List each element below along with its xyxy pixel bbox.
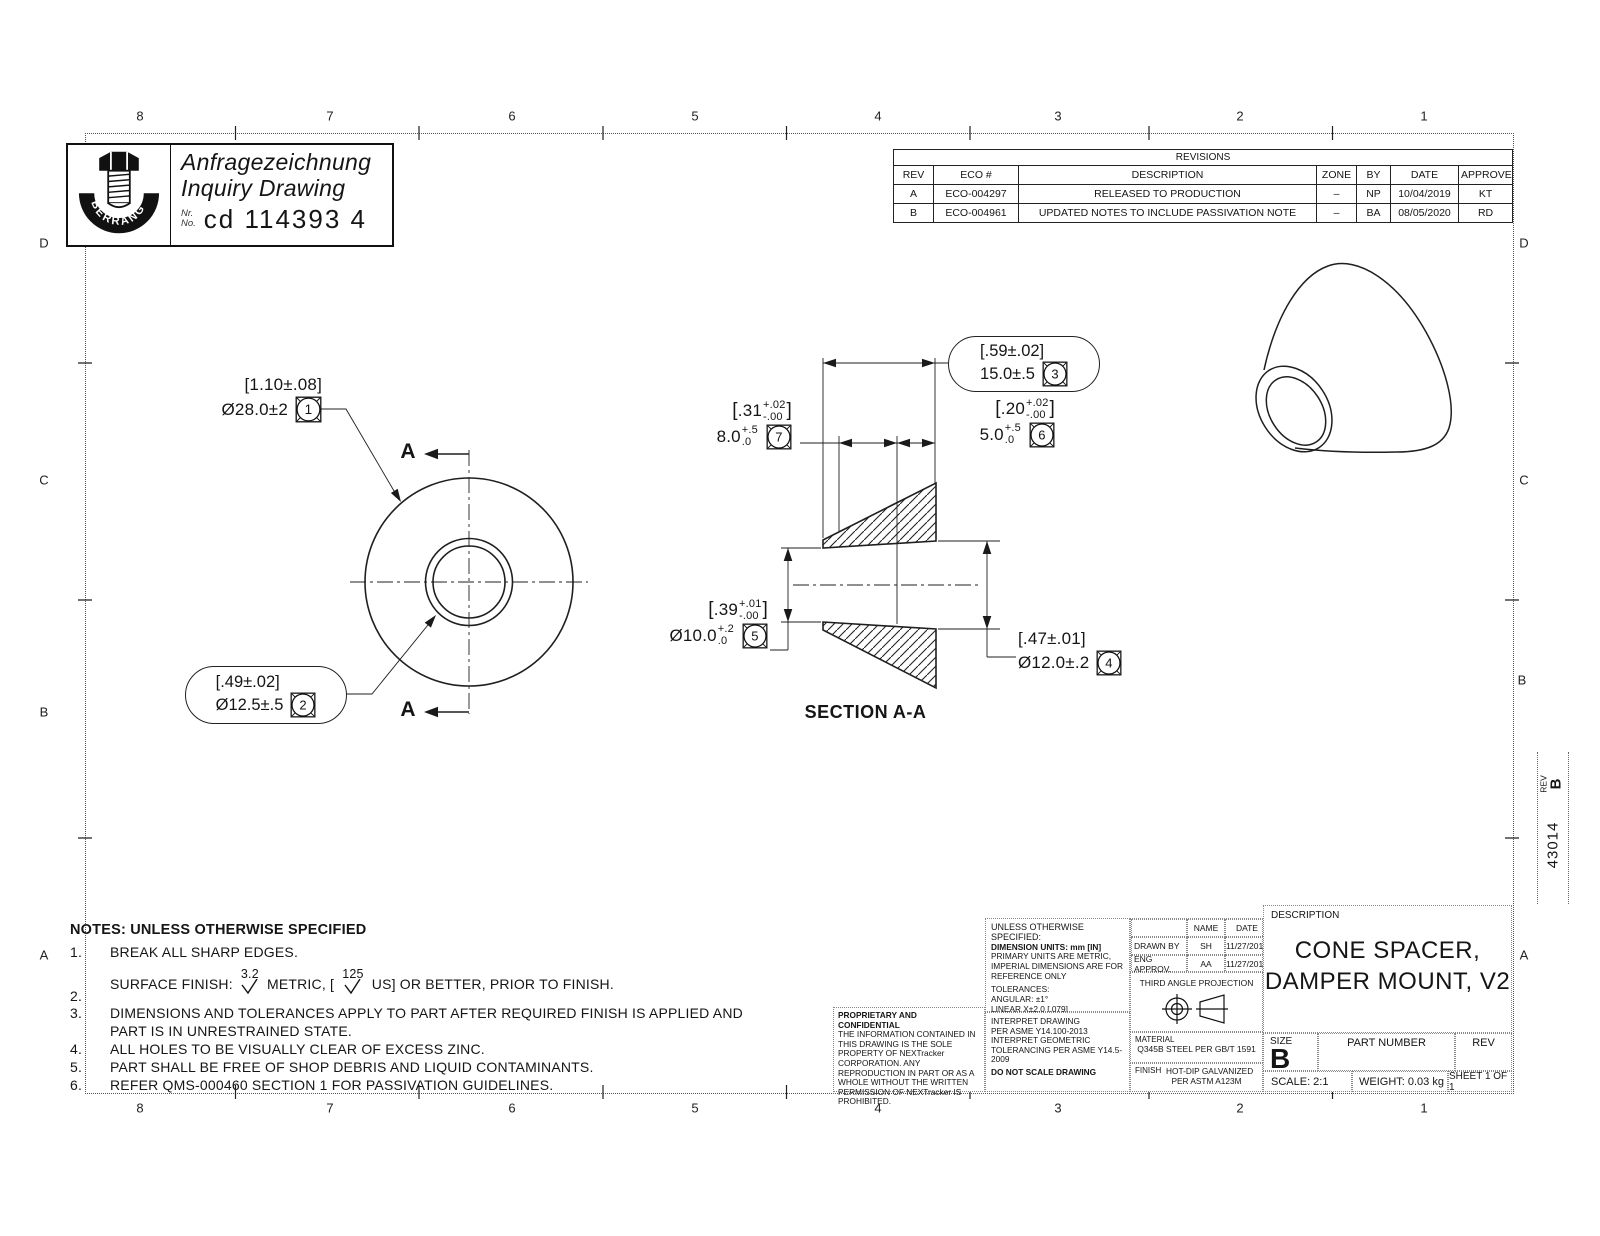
callout3-imperial: [.59±.02] bbox=[980, 341, 1068, 362]
revision-row-b: B ECO-004961 UPDATED NOTES TO INCLUDE PA… bbox=[894, 204, 1513, 223]
svg-text:5: 5 bbox=[751, 628, 758, 643]
svg-text:4: 4 bbox=[1106, 656, 1113, 671]
callout-depth-5: [.20+.02-.00] 5.0+.5.0 6 bbox=[945, 397, 1055, 448]
note-2-mid: METRIC, [ bbox=[267, 976, 334, 992]
note-2: 2. SURFACE FINISH: 3.2 METRIC, [ 125 US]… bbox=[70, 976, 778, 1006]
eco-a: ECO-004297 bbox=[934, 185, 1019, 204]
margin-rev-block: REV B bbox=[1540, 775, 1565, 792]
note-6-num: 6. bbox=[70, 1077, 110, 1095]
callout5-met-minus: .0 bbox=[718, 636, 734, 648]
name-header: NAME bbox=[1187, 919, 1225, 937]
note-3: 3. DIMENSIONS AND TOLERANCES APPLY TO PA… bbox=[70, 1005, 778, 1041]
callout-bore-10: [.39+.01-.00] Ø10.0+.2.0 5 bbox=[628, 598, 768, 649]
zone-top-7: 7 bbox=[326, 109, 333, 124]
zone-right-c: C bbox=[1519, 473, 1528, 488]
margin-doc-number: 43014 bbox=[1545, 822, 1562, 869]
flag-3: 3 bbox=[1042, 361, 1068, 387]
cut-letter-bottom: A bbox=[394, 698, 422, 722]
callout6-met-minus: .0 bbox=[1005, 435, 1021, 447]
callout7-met-base: 8.0 bbox=[717, 426, 741, 448]
note-2-post: US] OR BETTER, PRIOR TO FINISH. bbox=[372, 976, 614, 992]
projection-cell: THIRD ANGLE PROJECTION bbox=[1130, 972, 1263, 1032]
surface-finish-symbol-us: 125 bbox=[342, 968, 363, 995]
flag-7: 7 bbox=[766, 424, 792, 450]
scale-value: SCALE: 2:1 bbox=[1271, 1076, 1328, 1088]
approved-b: RD bbox=[1459, 204, 1513, 223]
callout5-imp-plus: +.01 bbox=[739, 599, 762, 611]
note-5-text: PART SHALL BE FREE OF SHOP DEBRIS AND LI… bbox=[110, 1059, 778, 1077]
zone-right-a: A bbox=[1520, 948, 1529, 963]
description-line2: DAMPER MOUNT, V2 bbox=[1264, 966, 1511, 997]
note-1-num: 1. bbox=[70, 944, 110, 962]
zone-bottom-2: 2 bbox=[1236, 1101, 1243, 1116]
callout1-imperial: [1.10±.08] bbox=[200, 374, 322, 396]
proprietary-body: THE INFORMATION CONTAINED IN THIS DRAWIN… bbox=[838, 1030, 980, 1107]
callout3-metric: 15.0±.5 bbox=[980, 364, 1035, 385]
zone-top-3: 3 bbox=[1054, 109, 1061, 124]
zone-bottom-8: 8 bbox=[136, 1101, 143, 1116]
callout4-imperial: [.47±.01] bbox=[1018, 628, 1130, 650]
zone-top-6: 6 bbox=[508, 109, 515, 124]
zone-top-4: 4 bbox=[874, 109, 881, 124]
notes-block: NOTES: UNLESS OTHERWISE SPECIFIED 1. BRE… bbox=[70, 922, 778, 1095]
cut-letter-top: A bbox=[394, 440, 422, 464]
units-note: PRIMARY UNITS ARE METRIC, IMPERIAL DIMEN… bbox=[991, 952, 1124, 981]
zone-b: – bbox=[1317, 204, 1357, 223]
note-4-num: 4. bbox=[70, 1041, 110, 1059]
note-4: 4. ALL HOLES TO BE VISUALLY CLEAR OF EXC… bbox=[70, 1041, 778, 1059]
zone-right-b: B bbox=[1518, 673, 1527, 688]
callout-depth-8: [.31+.02-.00] 8.0+.5.0 7 bbox=[680, 399, 792, 450]
zone-left-d: D bbox=[39, 236, 48, 251]
zone-right-d: D bbox=[1519, 236, 1528, 251]
callout5-met-plus: +.2 bbox=[718, 624, 734, 636]
drawn-by-name: SH bbox=[1187, 937, 1225, 955]
note-3-num: 3. bbox=[70, 1005, 110, 1041]
uos-cell: UNLESS OTHERWISE SPECIFIED: DIMENSION UN… bbox=[985, 918, 1130, 1012]
callout7-imp-base: .31 bbox=[738, 401, 762, 420]
callout2-imperial: [.49±.02] bbox=[216, 672, 317, 693]
drawn-by-label: DRAWN BY bbox=[1131, 937, 1187, 955]
rev-col-header: REV bbox=[894, 166, 934, 185]
date-b: 08/05/2020 bbox=[1391, 204, 1459, 223]
inquiry-title-de: Anfragezeichnung bbox=[181, 149, 386, 175]
drawing-sheet: 8 7 6 5 4 3 2 1 8 7 6 5 4 3 2 1 D C B A … bbox=[0, 0, 1600, 1236]
inquiry-title-en: Inquiry Drawing bbox=[181, 175, 386, 201]
desc-b: UPDATED NOTES TO INCLUDE PASSIVATION NOT… bbox=[1019, 204, 1317, 223]
approved-col-header: APPROVED bbox=[1459, 166, 1513, 185]
note-6-text: REFER QMS-000460 SECTION 1 FOR PASSIVATI… bbox=[110, 1077, 778, 1095]
zone-bottom-3: 3 bbox=[1054, 1101, 1061, 1116]
note-6: 6. REFER QMS-000460 SECTION 1 FOR PASSIV… bbox=[70, 1077, 778, 1095]
eco-col-header: ECO # bbox=[934, 166, 1019, 185]
svg-text:2: 2 bbox=[300, 698, 307, 713]
callout5-met-base: Ø10.0 bbox=[669, 625, 716, 647]
callout7-met-plus: +.5 bbox=[742, 425, 758, 437]
inquiry-number: cd 114393 4 bbox=[204, 204, 367, 235]
margin-rev-value: B bbox=[1549, 779, 1565, 790]
description-cell: DESCRIPTION CONE SPACER, DAMPER MOUNT, V… bbox=[1263, 905, 1512, 1033]
surface-finish-symbol-metric: 3.2 bbox=[241, 968, 259, 995]
callout-bore-12-5: [.49±.02] Ø12.5±.5 2 bbox=[185, 666, 347, 724]
eng-approv-label: ENG APPROV. bbox=[1131, 955, 1187, 973]
callout6-met-plus: +.5 bbox=[1005, 423, 1021, 435]
size-value: B bbox=[1270, 1047, 1317, 1071]
svg-text:3: 3 bbox=[1051, 367, 1058, 382]
note-5-num: 5. bbox=[70, 1059, 110, 1077]
flag-1: 1 bbox=[295, 396, 322, 423]
note-2-pre: SURFACE FINISH: bbox=[110, 976, 233, 992]
zone-top-2: 2 bbox=[1236, 109, 1243, 124]
material-label: MATERIAL bbox=[1135, 1035, 1258, 1044]
callout6-met-base: 5.0 bbox=[980, 424, 1004, 446]
flag-5: 5 bbox=[742, 623, 768, 649]
by-a: NP bbox=[1357, 185, 1391, 204]
third-angle-symbol bbox=[1162, 991, 1232, 1027]
margin-divider-right bbox=[1568, 752, 1569, 904]
by-col-header: BY bbox=[1357, 166, 1391, 185]
note-4-text: ALL HOLES TO BE VISUALLY CLEAR OF EXCESS… bbox=[110, 1041, 778, 1059]
approved-a: KT bbox=[1459, 185, 1513, 204]
finish-label: FINISH bbox=[1135, 1066, 1161, 1075]
rev-cell: REV bbox=[1455, 1033, 1512, 1071]
svg-text:7: 7 bbox=[775, 429, 782, 444]
svg-text:6: 6 bbox=[1038, 427, 1045, 442]
description-col-header: DESCRIPTION bbox=[1019, 166, 1317, 185]
svg-text:1: 1 bbox=[305, 402, 313, 417]
weight-cell: WEIGHT: 0.03 kg bbox=[1352, 1071, 1448, 1092]
description-line1: CONE SPACER, bbox=[1264, 935, 1511, 966]
callout5-imp-base: .39 bbox=[714, 600, 738, 619]
zone-bottom-5: 5 bbox=[691, 1101, 698, 1116]
flag-2: 2 bbox=[290, 692, 316, 718]
callout6-imp-base: .20 bbox=[1001, 399, 1025, 418]
callout7-bracket-close: ] bbox=[787, 400, 792, 421]
eco-b: ECO-004961 bbox=[934, 204, 1019, 223]
callout2-metric: Ø12.5±.5 bbox=[216, 695, 284, 716]
notes-title: NOTES: UNLESS OTHERWISE SPECIFIED bbox=[70, 922, 778, 938]
finish-value: HOT-DIP GALVANIZED PER ASTM A123M bbox=[1155, 1066, 1258, 1086]
sheet-value: SHEET 1 OF 1 bbox=[1449, 1071, 1511, 1093]
callout1-metric: Ø28.0±2 bbox=[222, 399, 289, 421]
callout6-imp-minus: -.00 bbox=[1026, 410, 1049, 422]
zone-bottom-1: 1 bbox=[1420, 1101, 1427, 1116]
projection-label: THIRD ANGLE PROJECTION bbox=[1140, 978, 1254, 988]
revision-row-a: A ECO-004297 RELEASED TO PRODUCTION – NP… bbox=[894, 185, 1513, 204]
inquiry-title-box: BERRANG Anfragezeichnung Inquiry Drawing… bbox=[66, 143, 394, 247]
note-3-text: DIMENSIONS AND TOLERANCES APPLY TO PART … bbox=[110, 1005, 778, 1041]
zone-top-1: 1 bbox=[1420, 109, 1427, 124]
by-b: BA bbox=[1357, 204, 1391, 223]
uos-title: UNLESS OTHERWISE SPECIFIED: bbox=[991, 922, 1124, 943]
flag-6: 6 bbox=[1029, 422, 1055, 448]
eng-approv-name: AA bbox=[1187, 955, 1225, 973]
material-value: Q345B STEEL PER GB/T 1591 bbox=[1135, 1044, 1258, 1054]
flag-4: 4 bbox=[1096, 650, 1122, 676]
callout4-metric: Ø12.0±.2 bbox=[1018, 652, 1089, 674]
callout5-bracket-close: ] bbox=[763, 599, 768, 620]
revisions-table: REVISIONS REV ECO # DESCRIPTION ZONE BY … bbox=[893, 149, 1513, 223]
zone-left-a: A bbox=[40, 948, 49, 963]
note-1-text: BREAK ALL SHARP EDGES. bbox=[110, 944, 778, 962]
zone-bottom-6: 6 bbox=[508, 1101, 515, 1116]
rev-cell-label: REV bbox=[1456, 1037, 1511, 1049]
callout-length-15: [.59±.02] 15.0±.5 3 bbox=[948, 336, 1100, 392]
part-number-label: PART NUMBER bbox=[1319, 1037, 1454, 1049]
do-not-scale: DO NOT SCALE DRAWING bbox=[991, 1068, 1124, 1078]
berrang-logo: BERRANG bbox=[68, 145, 171, 245]
approvals-table: NAME DATE DRAWN BY SH 11/27/2018 ENG APP… bbox=[1130, 918, 1263, 972]
callout6-imp-plus: +.02 bbox=[1026, 398, 1049, 410]
size-cell: SIZE B bbox=[1263, 1033, 1318, 1071]
callout-od-12: [.47±.01] Ø12.0±.2 4 bbox=[1018, 628, 1130, 676]
proprietary-title: PROPRIETARY AND CONFIDENTIAL bbox=[838, 1011, 980, 1030]
proprietary-cell: PROPRIETARY AND CONFIDENTIAL THE INFORMA… bbox=[833, 1007, 985, 1092]
zone-top-8: 8 bbox=[136, 109, 143, 124]
callout7-imp-minus: -.00 bbox=[763, 412, 786, 424]
zone-left-b: B bbox=[40, 705, 49, 720]
rev-a: A bbox=[894, 185, 934, 204]
callout-od-28: [1.10±.08] Ø28.0±2 1 bbox=[200, 374, 322, 423]
date-col-header: DATE bbox=[1391, 166, 1459, 185]
date-a: 10/04/2019 bbox=[1391, 185, 1459, 204]
sheet-cell: SHEET 1 OF 1 bbox=[1448, 1071, 1512, 1092]
callout7-met-minus: .0 bbox=[742, 437, 758, 449]
section-label: SECTION A-A bbox=[793, 702, 938, 723]
finish-cell: FINISH HOT-DIP GALVANIZED PER ASTM A123M bbox=[1130, 1063, 1263, 1092]
scale-cell: SCALE: 2:1 bbox=[1263, 1071, 1352, 1092]
zone-left-c: C bbox=[39, 473, 48, 488]
note-5: 5. PART SHALL BE FREE OF SHOP DEBRIS AND… bbox=[70, 1059, 778, 1077]
interpret-standards: INTERPRET DRAWING PER ASME Y14.100-2013 … bbox=[991, 1017, 1124, 1065]
part-number-cell: PART NUMBER bbox=[1318, 1033, 1455, 1071]
note-1: 1. BREAK ALL SHARP EDGES. bbox=[70, 944, 778, 962]
callout7-imp-plus: +.02 bbox=[763, 400, 786, 412]
rev-b: B bbox=[894, 204, 934, 223]
zone-top-5: 5 bbox=[691, 109, 698, 124]
zone-bottom-7: 7 bbox=[326, 1101, 333, 1116]
no-label: No. bbox=[181, 219, 196, 229]
callout5-imp-minus: -.00 bbox=[739, 611, 762, 623]
material-cell: MATERIAL Q345B STEEL PER GB/T 1591 bbox=[1130, 1032, 1263, 1063]
desc-a: RELEASED TO PRODUCTION bbox=[1019, 185, 1317, 204]
weight-value: WEIGHT: 0.03 kg bbox=[1359, 1076, 1444, 1088]
zone-a: – bbox=[1317, 185, 1357, 204]
zone-col-header: ZONE bbox=[1317, 166, 1357, 185]
callout6-bracket-close: ] bbox=[1050, 398, 1055, 419]
note-2-num: 2. bbox=[70, 988, 110, 1006]
interpret-cell: INTERPRET DRAWING PER ASME Y14.100-2013 … bbox=[985, 1012, 1130, 1092]
revisions-title: REVISIONS bbox=[894, 150, 1513, 166]
description-label: DESCRIPTION bbox=[1264, 906, 1511, 921]
